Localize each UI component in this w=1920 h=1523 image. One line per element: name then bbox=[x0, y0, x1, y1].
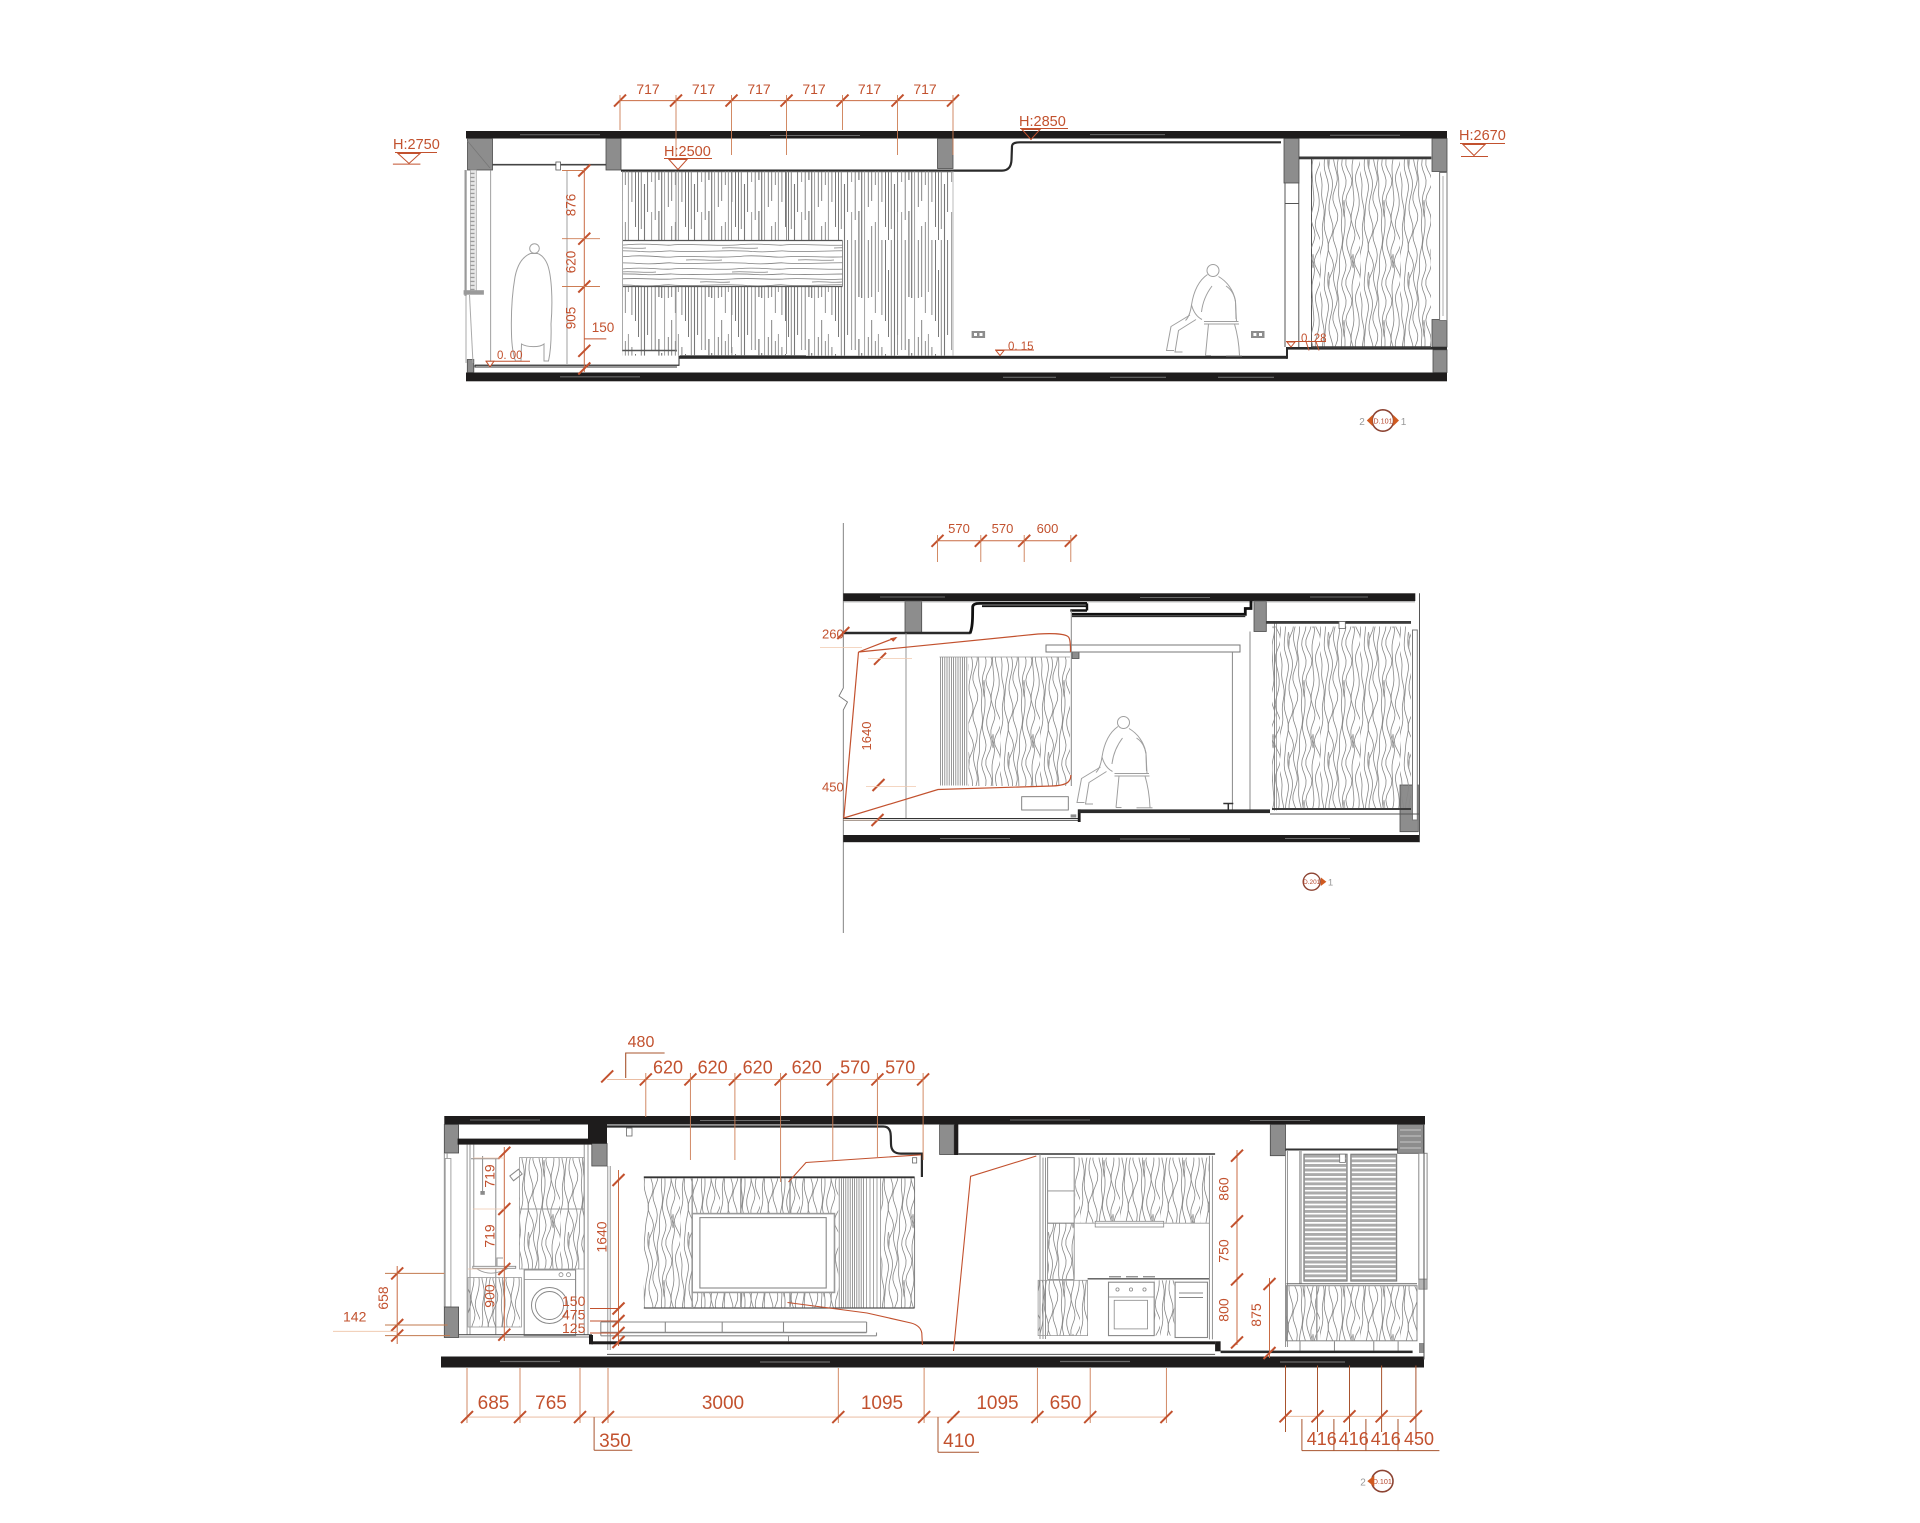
svg-text:875: 875 bbox=[1248, 1303, 1264, 1327]
svg-text:620: 620 bbox=[698, 1058, 728, 1078]
svg-text:410: 410 bbox=[943, 1431, 975, 1452]
svg-text:480: 480 bbox=[628, 1034, 655, 1051]
svg-text:570: 570 bbox=[840, 1058, 870, 1078]
svg-text:0. 15: 0. 15 bbox=[1008, 341, 1034, 353]
svg-text:570: 570 bbox=[992, 521, 1014, 536]
svg-text:719: 719 bbox=[482, 1224, 498, 1248]
svg-text:658: 658 bbox=[375, 1286, 391, 1310]
svg-text:350: 350 bbox=[599, 1431, 631, 1452]
svg-text:450: 450 bbox=[1404, 1429, 1434, 1449]
svg-text:717: 717 bbox=[802, 81, 826, 97]
svg-text:125: 125 bbox=[562, 1320, 586, 1336]
svg-text:2: 2 bbox=[1360, 1478, 1366, 1489]
svg-text:H:2500: H:2500 bbox=[664, 144, 711, 160]
svg-text:2: 2 bbox=[1359, 417, 1365, 428]
svg-text:717: 717 bbox=[636, 81, 660, 97]
svg-text:719: 719 bbox=[482, 1164, 498, 1188]
svg-text:450: 450 bbox=[822, 780, 844, 795]
svg-text:620: 620 bbox=[743, 1058, 773, 1078]
svg-text:905: 905 bbox=[564, 307, 579, 330]
svg-text:765: 765 bbox=[535, 1393, 567, 1414]
svg-text:H:2670: H:2670 bbox=[1459, 128, 1506, 144]
svg-text:876: 876 bbox=[564, 194, 579, 217]
svg-text:1095: 1095 bbox=[976, 1393, 1018, 1414]
svg-text:416: 416 bbox=[1307, 1429, 1337, 1449]
svg-text:D.201: D.201 bbox=[1303, 879, 1320, 886]
svg-text:717: 717 bbox=[913, 81, 937, 97]
svg-text:717: 717 bbox=[747, 81, 771, 97]
svg-text:416: 416 bbox=[1339, 1429, 1369, 1449]
svg-text:H:2750: H:2750 bbox=[393, 137, 440, 153]
svg-text:717: 717 bbox=[858, 81, 882, 97]
svg-text:1: 1 bbox=[1401, 417, 1407, 428]
svg-text:D.101: D.101 bbox=[1373, 417, 1392, 426]
svg-text:620: 620 bbox=[653, 1058, 683, 1078]
svg-text:3000: 3000 bbox=[702, 1393, 744, 1414]
svg-text:260: 260 bbox=[822, 627, 844, 642]
svg-text:800: 800 bbox=[1216, 1298, 1232, 1322]
svg-text:750: 750 bbox=[1216, 1239, 1232, 1263]
svg-text:142: 142 bbox=[343, 1309, 367, 1325]
svg-text:0. 28: 0. 28 bbox=[1301, 333, 1327, 345]
svg-text:570: 570 bbox=[948, 521, 970, 536]
svg-text:1095: 1095 bbox=[861, 1393, 903, 1414]
svg-text:1: 1 bbox=[1328, 878, 1333, 889]
svg-text:H:2850: H:2850 bbox=[1019, 114, 1066, 130]
svg-text:570: 570 bbox=[885, 1058, 915, 1078]
svg-text:416: 416 bbox=[1371, 1429, 1401, 1449]
svg-text:1640: 1640 bbox=[594, 1221, 610, 1252]
svg-text:600: 600 bbox=[1037, 521, 1059, 536]
svg-text:900: 900 bbox=[482, 1284, 498, 1308]
svg-text:1640: 1640 bbox=[859, 722, 874, 751]
svg-text:620: 620 bbox=[564, 251, 579, 274]
svg-text:150: 150 bbox=[592, 320, 615, 335]
svg-text:860: 860 bbox=[1216, 1177, 1232, 1201]
svg-text:0. 00: 0. 00 bbox=[497, 350, 523, 362]
svg-text:620: 620 bbox=[792, 1058, 822, 1078]
svg-text:685: 685 bbox=[478, 1393, 510, 1414]
svg-text:717: 717 bbox=[692, 81, 716, 97]
svg-text:650: 650 bbox=[1050, 1393, 1082, 1414]
svg-text:D.101: D.101 bbox=[1373, 1477, 1392, 1486]
